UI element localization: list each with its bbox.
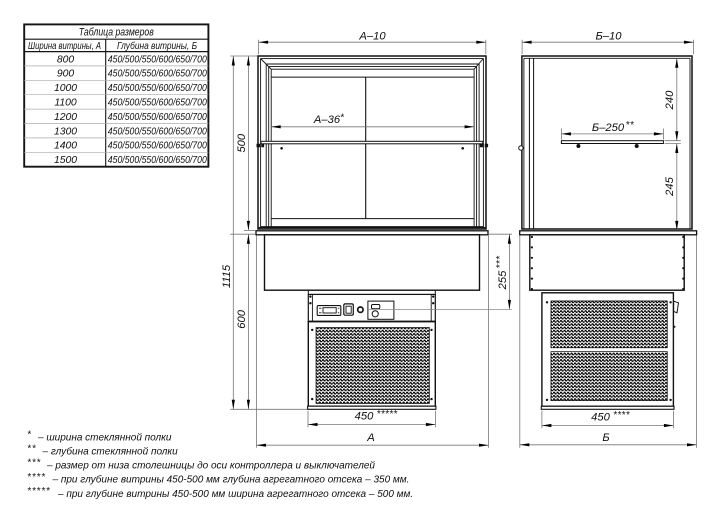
svg-text:240: 240 bbox=[664, 90, 676, 110]
svg-text:– при глубине витрины 450-500: – при глубине витрины 450-500 мм глубина… bbox=[52, 474, 410, 486]
svg-text:450: 450 bbox=[355, 411, 374, 423]
svg-text:****: **** bbox=[27, 472, 46, 483]
svg-text:– при глубине витрины 450-500: – при глубине витрины 450-500 мм ширина … bbox=[57, 488, 413, 500]
svg-text:450/500/550/600/650/700: 450/500/550/600/650/700 bbox=[108, 112, 207, 123]
svg-text:*****: ***** bbox=[27, 486, 51, 497]
svg-text:***: *** bbox=[27, 458, 41, 469]
svg-text:450/500/550/600/650/700: 450/500/550/600/650/700 bbox=[108, 126, 207, 137]
svg-text:Ширина витрины, А: Ширина витрины, А bbox=[28, 41, 101, 52]
svg-text:А–36: А–36 bbox=[313, 114, 341, 126]
svg-text:Глубина витрины, Б: Глубина витрины, Б bbox=[117, 40, 197, 52]
svg-text:450/500/550/600/650/700: 450/500/550/600/650/700 bbox=[108, 141, 207, 152]
svg-text:1100: 1100 bbox=[54, 98, 77, 109]
svg-text:900: 900 bbox=[57, 69, 75, 80]
svg-text:450/500/550/600/650/700: 450/500/550/600/650/700 bbox=[108, 155, 207, 166]
svg-text:1300: 1300 bbox=[54, 126, 77, 137]
svg-text:1500: 1500 bbox=[54, 155, 77, 166]
svg-text:– размер от низа столешницы до: – размер от низа столешницы до оси контр… bbox=[46, 460, 375, 471]
svg-text:*****: ***** bbox=[377, 409, 399, 420]
svg-text:Б: Б bbox=[602, 432, 609, 444]
svg-text:*: * bbox=[27, 430, 32, 441]
svg-text:А: А bbox=[366, 432, 374, 444]
svg-text:Б–250: Б–250 bbox=[592, 122, 625, 134]
svg-text:****: **** bbox=[613, 410, 631, 421]
svg-text:Б–10: Б–10 bbox=[596, 30, 623, 42]
svg-text:255: 255 bbox=[497, 270, 509, 290]
svg-text:Таблица размеров: Таблица размеров bbox=[79, 26, 154, 38]
svg-text:450/500/550/600/650/700: 450/500/550/600/650/700 bbox=[108, 69, 207, 80]
svg-text:450: 450 bbox=[591, 412, 610, 424]
svg-text:800: 800 bbox=[57, 54, 75, 65]
svg-text:1115: 1115 bbox=[221, 264, 233, 288]
svg-text:245: 245 bbox=[664, 176, 676, 196]
svg-text:450/500/550/600/650/700: 450/500/550/600/650/700 bbox=[108, 98, 207, 109]
svg-text:**: ** bbox=[626, 120, 635, 131]
svg-text:600: 600 bbox=[236, 309, 248, 328]
svg-text:450/500/550/600/650/700: 450/500/550/600/650/700 bbox=[108, 54, 207, 65]
svg-text:***: *** bbox=[495, 255, 506, 269]
svg-text:**: ** bbox=[27, 444, 37, 455]
svg-text:1000: 1000 bbox=[54, 83, 77, 94]
svg-text:1400: 1400 bbox=[54, 141, 77, 152]
svg-text:– глубина стеклянной полки: – глубина стеклянной полки bbox=[42, 445, 179, 457]
svg-text:А–10: А–10 bbox=[358, 30, 386, 42]
svg-text:450/500/550/600/650/700: 450/500/550/600/650/700 bbox=[108, 83, 207, 94]
svg-text:– ширина стеклянной полки: – ширина стеклянной полки bbox=[37, 432, 172, 443]
svg-text:500: 500 bbox=[236, 133, 248, 152]
svg-text:1200: 1200 bbox=[54, 112, 77, 123]
